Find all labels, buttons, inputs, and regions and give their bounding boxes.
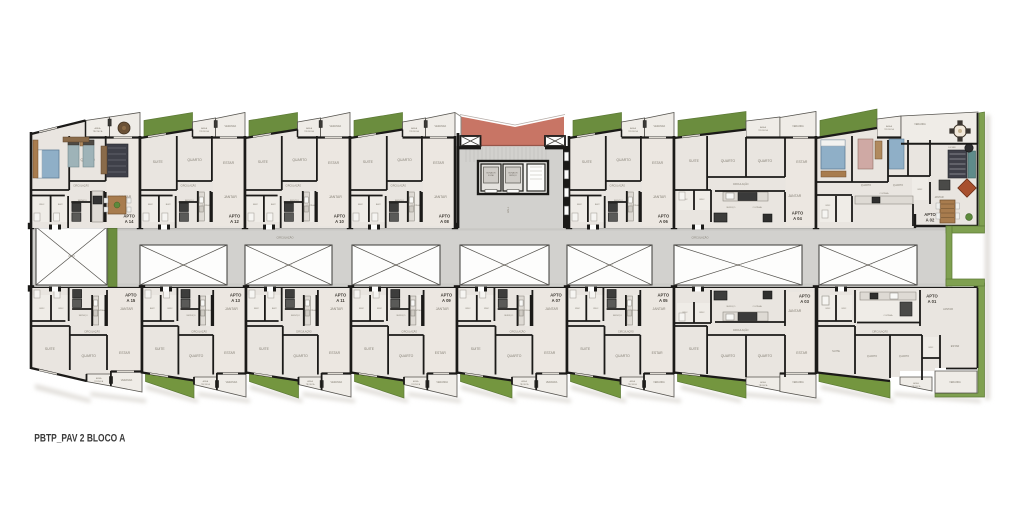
svg-text:SUITE: SUITE <box>471 347 482 351</box>
svg-text:A 04: A 04 <box>793 216 802 221</box>
svg-text:APTO: APTO <box>792 211 804 216</box>
svg-text:BWC: BWC <box>577 204 583 206</box>
svg-text:SERVIÇO: SERVIÇO <box>396 315 405 317</box>
svg-text:TÉCNICA: TÉCNICA <box>201 383 210 386</box>
svg-text:ÁREA: ÁREA <box>413 380 419 383</box>
svg-text:JANTAR: JANTAR <box>653 307 666 311</box>
svg-text:CIRCULAÇÃO: CIRCULAÇÃO <box>180 185 196 188</box>
svg-text:VAZIO: VAZIO <box>501 264 508 267</box>
svg-text:CIRCULAÇÃO: CIRCULAÇÃO <box>401 331 417 334</box>
svg-text:BWC: BWC <box>358 204 364 206</box>
svg-text:QUARTO: QUARTO <box>721 159 736 163</box>
svg-text:QUARTO: QUARTO <box>187 158 202 162</box>
svg-text:TÉCNICA: TÉCNICA <box>306 383 315 386</box>
svg-text:A 10: A 10 <box>335 219 344 224</box>
svg-text:ESTAR: ESTAR <box>328 161 340 165</box>
svg-text:CIRCULAÇÃO: CIRCULAÇÃO <box>733 329 749 332</box>
svg-text:A 03: A 03 <box>800 299 809 304</box>
svg-text:ESTAR: ESTAR <box>652 161 664 165</box>
svg-text:VERANDA: VERANDA <box>121 379 133 382</box>
svg-text:QUARTO: QUARTO <box>189 354 204 358</box>
svg-text:COZINHA: COZINHA <box>753 305 763 308</box>
svg-text:ESTAR: ESTAR <box>948 146 956 149</box>
svg-text:CIRCULAÇÃO: CIRCULAÇÃO <box>609 185 625 188</box>
svg-text:TÉCNICA: TÉCNICA <box>409 130 419 133</box>
svg-text:BWC: BWC <box>575 308 581 310</box>
svg-text:SUITE: SUITE <box>259 347 270 351</box>
svg-text:JANTAR: JANTAR <box>330 307 343 311</box>
svg-text:JANTAR: JANTAR <box>788 309 801 313</box>
svg-text:SUITE: SUITE <box>582 160 593 164</box>
svg-text:SUITE: SUITE <box>689 159 700 163</box>
svg-text:SERVIÇO: SERVIÇO <box>726 207 735 209</box>
svg-text:SERVIÇO: SERVIÇO <box>613 315 622 317</box>
svg-text:TÉCNICA: TÉCNICA <box>912 385 921 388</box>
svg-text:SERVIÇO: SERVIÇO <box>186 315 195 317</box>
svg-text:VERANDA: VERANDA <box>330 125 342 128</box>
svg-text:CIRCULAÇÃO: CIRCULAÇÃO <box>191 331 207 334</box>
svg-text:BWC: BWC <box>593 308 599 310</box>
svg-text:ÁREA: ÁREA <box>760 126 766 129</box>
svg-text:QUARTO: QUARTO <box>615 354 630 358</box>
svg-text:ESTAR: ESTAR <box>433 161 445 165</box>
svg-text:COZINHA: COZINHA <box>880 192 890 195</box>
svg-text:APTO: APTO <box>334 214 346 219</box>
svg-text:TÉCNICA: TÉCNICA <box>94 380 103 383</box>
svg-text:QUARTO: QUARTO <box>721 354 736 358</box>
svg-text:VERANDA: VERANDA <box>225 125 237 128</box>
svg-text:VERANDA: VERANDA <box>436 381 448 384</box>
svg-text:VAZIO: VAZIO <box>735 264 742 267</box>
svg-text:TÉCNICA: TÉCNICA <box>411 383 420 386</box>
svg-text:APTO: APTO <box>441 293 453 298</box>
svg-text:APTO: APTO <box>439 214 451 219</box>
svg-text:JANTAR: JANTAR <box>120 307 133 311</box>
svg-text:BWC: BWC <box>150 308 156 310</box>
svg-text:ÁREA: ÁREA <box>913 382 919 385</box>
svg-text:QUARTO: QUARTO <box>893 184 903 187</box>
svg-text:A 05: A 05 <box>659 298 668 303</box>
svg-text:QUARTO: QUARTO <box>82 354 97 358</box>
svg-text:BWC: BWC <box>842 308 847 310</box>
svg-text:QUARTO: QUARTO <box>758 354 773 358</box>
svg-text:ESTAR: ESTAR <box>329 351 341 355</box>
svg-text:APTO: APTO <box>125 293 137 298</box>
svg-text:ÁREA: ÁREA <box>521 380 527 383</box>
svg-text:JANTAR: JANTAR <box>434 195 447 199</box>
svg-text:ÁREA: ÁREA <box>411 127 417 130</box>
svg-text:VERANDA: VERANDA <box>914 123 926 126</box>
svg-text:ESTAR: ESTAR <box>652 351 664 355</box>
svg-text:APTO: APTO <box>229 214 241 219</box>
svg-text:SERVIÇO: SERVIÇO <box>726 306 735 308</box>
svg-text:CIRCULAÇÃO: CIRCULAÇÃO <box>390 185 406 188</box>
svg-text:QUARTO: QUARTO <box>758 159 773 163</box>
svg-text:TÉCNICA: TÉCNICA <box>759 384 768 387</box>
svg-text:ÁREA: ÁREA <box>95 127 101 130</box>
svg-text:SUITE: SUITE <box>258 160 269 164</box>
svg-text:TÉCNICA: TÉCNICA <box>304 130 314 133</box>
svg-text:ÁREA: ÁREA <box>96 377 102 380</box>
svg-text:SUITE: SUITE <box>363 160 374 164</box>
svg-text:VAZIO: VAZIO <box>68 255 75 258</box>
svg-text:TÉCNICA: TÉCNICA <box>93 130 103 133</box>
svg-text:A 13: A 13 <box>231 298 240 303</box>
svg-text:VERANDA: VERANDA <box>546 381 558 384</box>
svg-text:VERANDA: VERANDA <box>653 381 665 384</box>
svg-text:SUITE: SUITE <box>155 347 166 351</box>
svg-text:A 09: A 09 <box>442 298 451 303</box>
svg-text:TÉCNICA: TÉCNICA <box>628 130 638 133</box>
svg-text:JANTAR: JANTAR <box>788 194 801 198</box>
svg-text:QUARTO: QUARTO <box>899 355 909 358</box>
svg-text:BWC: BWC <box>699 199 705 201</box>
svg-text:ESTAR: ESTAR <box>951 344 960 348</box>
svg-text:SUITE: SUITE <box>364 347 375 351</box>
svg-text:JANTAR: JANTAR <box>225 307 238 311</box>
svg-text:VERANDA: VERANDA <box>226 381 238 384</box>
svg-text:TÉCNICA: TÉCNICA <box>884 128 894 131</box>
svg-text:QUARTO: QUARTO <box>507 354 522 358</box>
svg-text:ÁREA: ÁREA <box>307 380 313 383</box>
svg-text:CIRCULAÇÃO: CIRCULAÇÃO <box>872 331 888 334</box>
svg-text:CIRCULAÇÃO: CIRCULAÇÃO <box>510 331 526 334</box>
svg-text:APTO: APTO <box>550 293 562 298</box>
svg-text:BWC: BWC <box>376 204 382 206</box>
svg-text:SUITE: SUITE <box>153 160 164 164</box>
svg-text:TÉCNICA: TÉCNICA <box>199 130 209 133</box>
svg-text:ÁREA: ÁREA <box>630 127 636 130</box>
svg-text:JANTAR: JANTAR <box>653 195 666 199</box>
svg-text:BWC: BWC <box>58 308 64 310</box>
svg-text:ESTAR: ESTAR <box>223 161 235 165</box>
svg-text:SUITE: SUITE <box>45 347 56 351</box>
svg-text:A 01: A 01 <box>928 299 937 304</box>
svg-text:VERANDA: VERANDA <box>949 381 961 384</box>
svg-text:A 15: A 15 <box>127 298 136 303</box>
svg-text:ÁREA: ÁREA <box>760 381 766 384</box>
svg-text:VERANDA: VERANDA <box>792 381 804 384</box>
svg-text:QUARTO: QUARTO <box>397 158 412 162</box>
svg-text:TÉCNICA: TÉCNICA <box>520 383 529 386</box>
svg-text:CIRCULAÇÃO: CIRCULAÇÃO <box>285 185 301 188</box>
svg-text:BWC: BWC <box>929 347 934 349</box>
svg-text:HALL: HALL <box>506 206 510 213</box>
svg-text:VERANDA: VERANDA <box>792 125 804 128</box>
svg-text:QUARTO: QUARTO <box>861 184 871 187</box>
svg-text:APTO: APTO <box>658 214 670 219</box>
svg-text:SUITE: SUITE <box>689 347 700 351</box>
svg-text:APTO: APTO <box>658 293 670 298</box>
svg-text:COZINHA: COZINHA <box>753 206 763 209</box>
svg-text:ÁREA: ÁREA <box>630 380 636 383</box>
svg-text:VERANDA: VERANDA <box>435 125 447 128</box>
svg-text:SERVIÇO: SERVIÇO <box>291 315 300 317</box>
svg-text:QUARTO: QUARTO <box>293 354 308 358</box>
svg-text:BWC: BWC <box>272 308 278 310</box>
svg-text:CIRCULAÇÃO: CIRCULAÇÃO <box>618 331 634 334</box>
svg-text:CIRCULAÇÃO: CIRCULAÇÃO <box>733 183 749 186</box>
svg-text:A 14: A 14 <box>125 219 134 224</box>
svg-text:JANTAR: JANTAR <box>545 307 558 311</box>
svg-text:CIRCULAÇÃO: CIRCULAÇÃO <box>84 331 100 334</box>
svg-text:BWC: BWC <box>826 308 831 310</box>
svg-text:A 02: A 02 <box>926 218 935 223</box>
svg-text:PBTP_PAV 2 BLOCO A: PBTP_PAV 2 BLOCO A <box>34 433 125 445</box>
svg-text:BWC: BWC <box>253 204 259 206</box>
svg-text:TÉCNICA: TÉCNICA <box>628 383 637 386</box>
svg-text:ESTAR: ESTAR <box>796 351 808 355</box>
svg-text:A 08: A 08 <box>440 219 449 224</box>
svg-text:ESTAR: ESTAR <box>796 160 808 164</box>
svg-text:ESTAR: ESTAR <box>119 351 131 355</box>
svg-text:JANTAR: JANTAR <box>934 196 943 199</box>
svg-text:VAZIO: VAZIO <box>393 264 400 267</box>
svg-text:APTO: APTO <box>335 293 347 298</box>
svg-text:BWC: BWC <box>918 189 923 191</box>
svg-text:JANTAR: JANTAR <box>224 195 237 199</box>
svg-text:JANTAR: JANTAR <box>436 307 449 311</box>
svg-text:ESTAR: ESTAR <box>224 351 236 355</box>
svg-text:ÁREA: ÁREA <box>306 127 312 130</box>
svg-text:A 11: A 11 <box>336 298 345 303</box>
svg-text:A 06: A 06 <box>659 219 668 224</box>
svg-text:SERVIÇO: SERVIÇO <box>79 315 88 317</box>
svg-text:QUARTO: QUARTO <box>616 158 631 162</box>
svg-text:APTO: APTO <box>926 294 938 299</box>
svg-text:QUARTO: QUARTO <box>292 158 307 162</box>
svg-text:BWC: BWC <box>359 308 365 310</box>
svg-text:BWC: BWC <box>39 204 45 206</box>
svg-text:CIRCULAÇÃO: CIRCULAÇÃO <box>73 185 89 188</box>
svg-text:QUARTO: QUARTO <box>399 354 414 358</box>
svg-text:SUITE: SUITE <box>832 349 840 353</box>
svg-text:APTO: APTO <box>799 294 811 299</box>
svg-text:CIRCULAÇÃO: CIRCULAÇÃO <box>296 331 312 334</box>
svg-text:VAZIO: VAZIO <box>606 264 613 267</box>
svg-text:A 12: A 12 <box>230 219 239 224</box>
svg-text:A 07: A 07 <box>552 298 561 303</box>
svg-text:VAZIO: VAZIO <box>180 264 187 267</box>
svg-text:ÁREA: ÁREA <box>203 380 209 383</box>
svg-text:BWC: BWC <box>40 308 46 310</box>
svg-text:BWC: BWC <box>377 308 383 310</box>
svg-text:VAZIO: VAZIO <box>865 264 872 267</box>
svg-text:BWC: BWC <box>58 204 64 206</box>
svg-text:TÉCNICA: TÉCNICA <box>758 129 768 132</box>
svg-text:BWC: BWC <box>168 308 174 310</box>
svg-text:ESTAR: ESTAR <box>544 351 556 355</box>
svg-text:SUITE: SUITE <box>580 347 591 351</box>
svg-text:BWC: BWC <box>254 308 260 310</box>
svg-text:BWC: BWC <box>166 204 172 206</box>
svg-text:BWC: BWC <box>484 308 490 310</box>
svg-text:BWC: BWC <box>271 204 277 206</box>
svg-text:BWC: BWC <box>595 204 601 206</box>
svg-text:BWC: BWC <box>826 205 831 207</box>
svg-text:VAZIO: VAZIO <box>285 264 292 267</box>
svg-text:APTO: APTO <box>924 212 936 217</box>
svg-text:SERVIÇO: SERVIÇO <box>504 315 513 317</box>
svg-text:ÁREA: ÁREA <box>886 125 892 128</box>
svg-text:VERANDA: VERANDA <box>654 125 666 128</box>
svg-text:BWC: BWC <box>699 312 705 314</box>
svg-text:ÁREA: ÁREA <box>201 127 207 130</box>
svg-text:SERVIÇO: SERVIÇO <box>509 175 517 177</box>
svg-text:JANTAR: JANTAR <box>943 307 953 311</box>
svg-text:APTO: APTO <box>230 293 242 298</box>
svg-text:COZINHA: COZINHA <box>884 314 894 317</box>
svg-text:BWC: BWC <box>465 308 471 310</box>
svg-text:ESTAR: ESTAR <box>435 351 447 355</box>
svg-text:JANTAR: JANTAR <box>329 195 342 199</box>
svg-text:VERANDA: VERANDA <box>331 381 343 384</box>
svg-text:BWC: BWC <box>148 204 154 206</box>
svg-text:QUARTO: QUARTO <box>867 355 877 358</box>
svg-text:SOCIAL: SOCIAL <box>488 174 494 177</box>
